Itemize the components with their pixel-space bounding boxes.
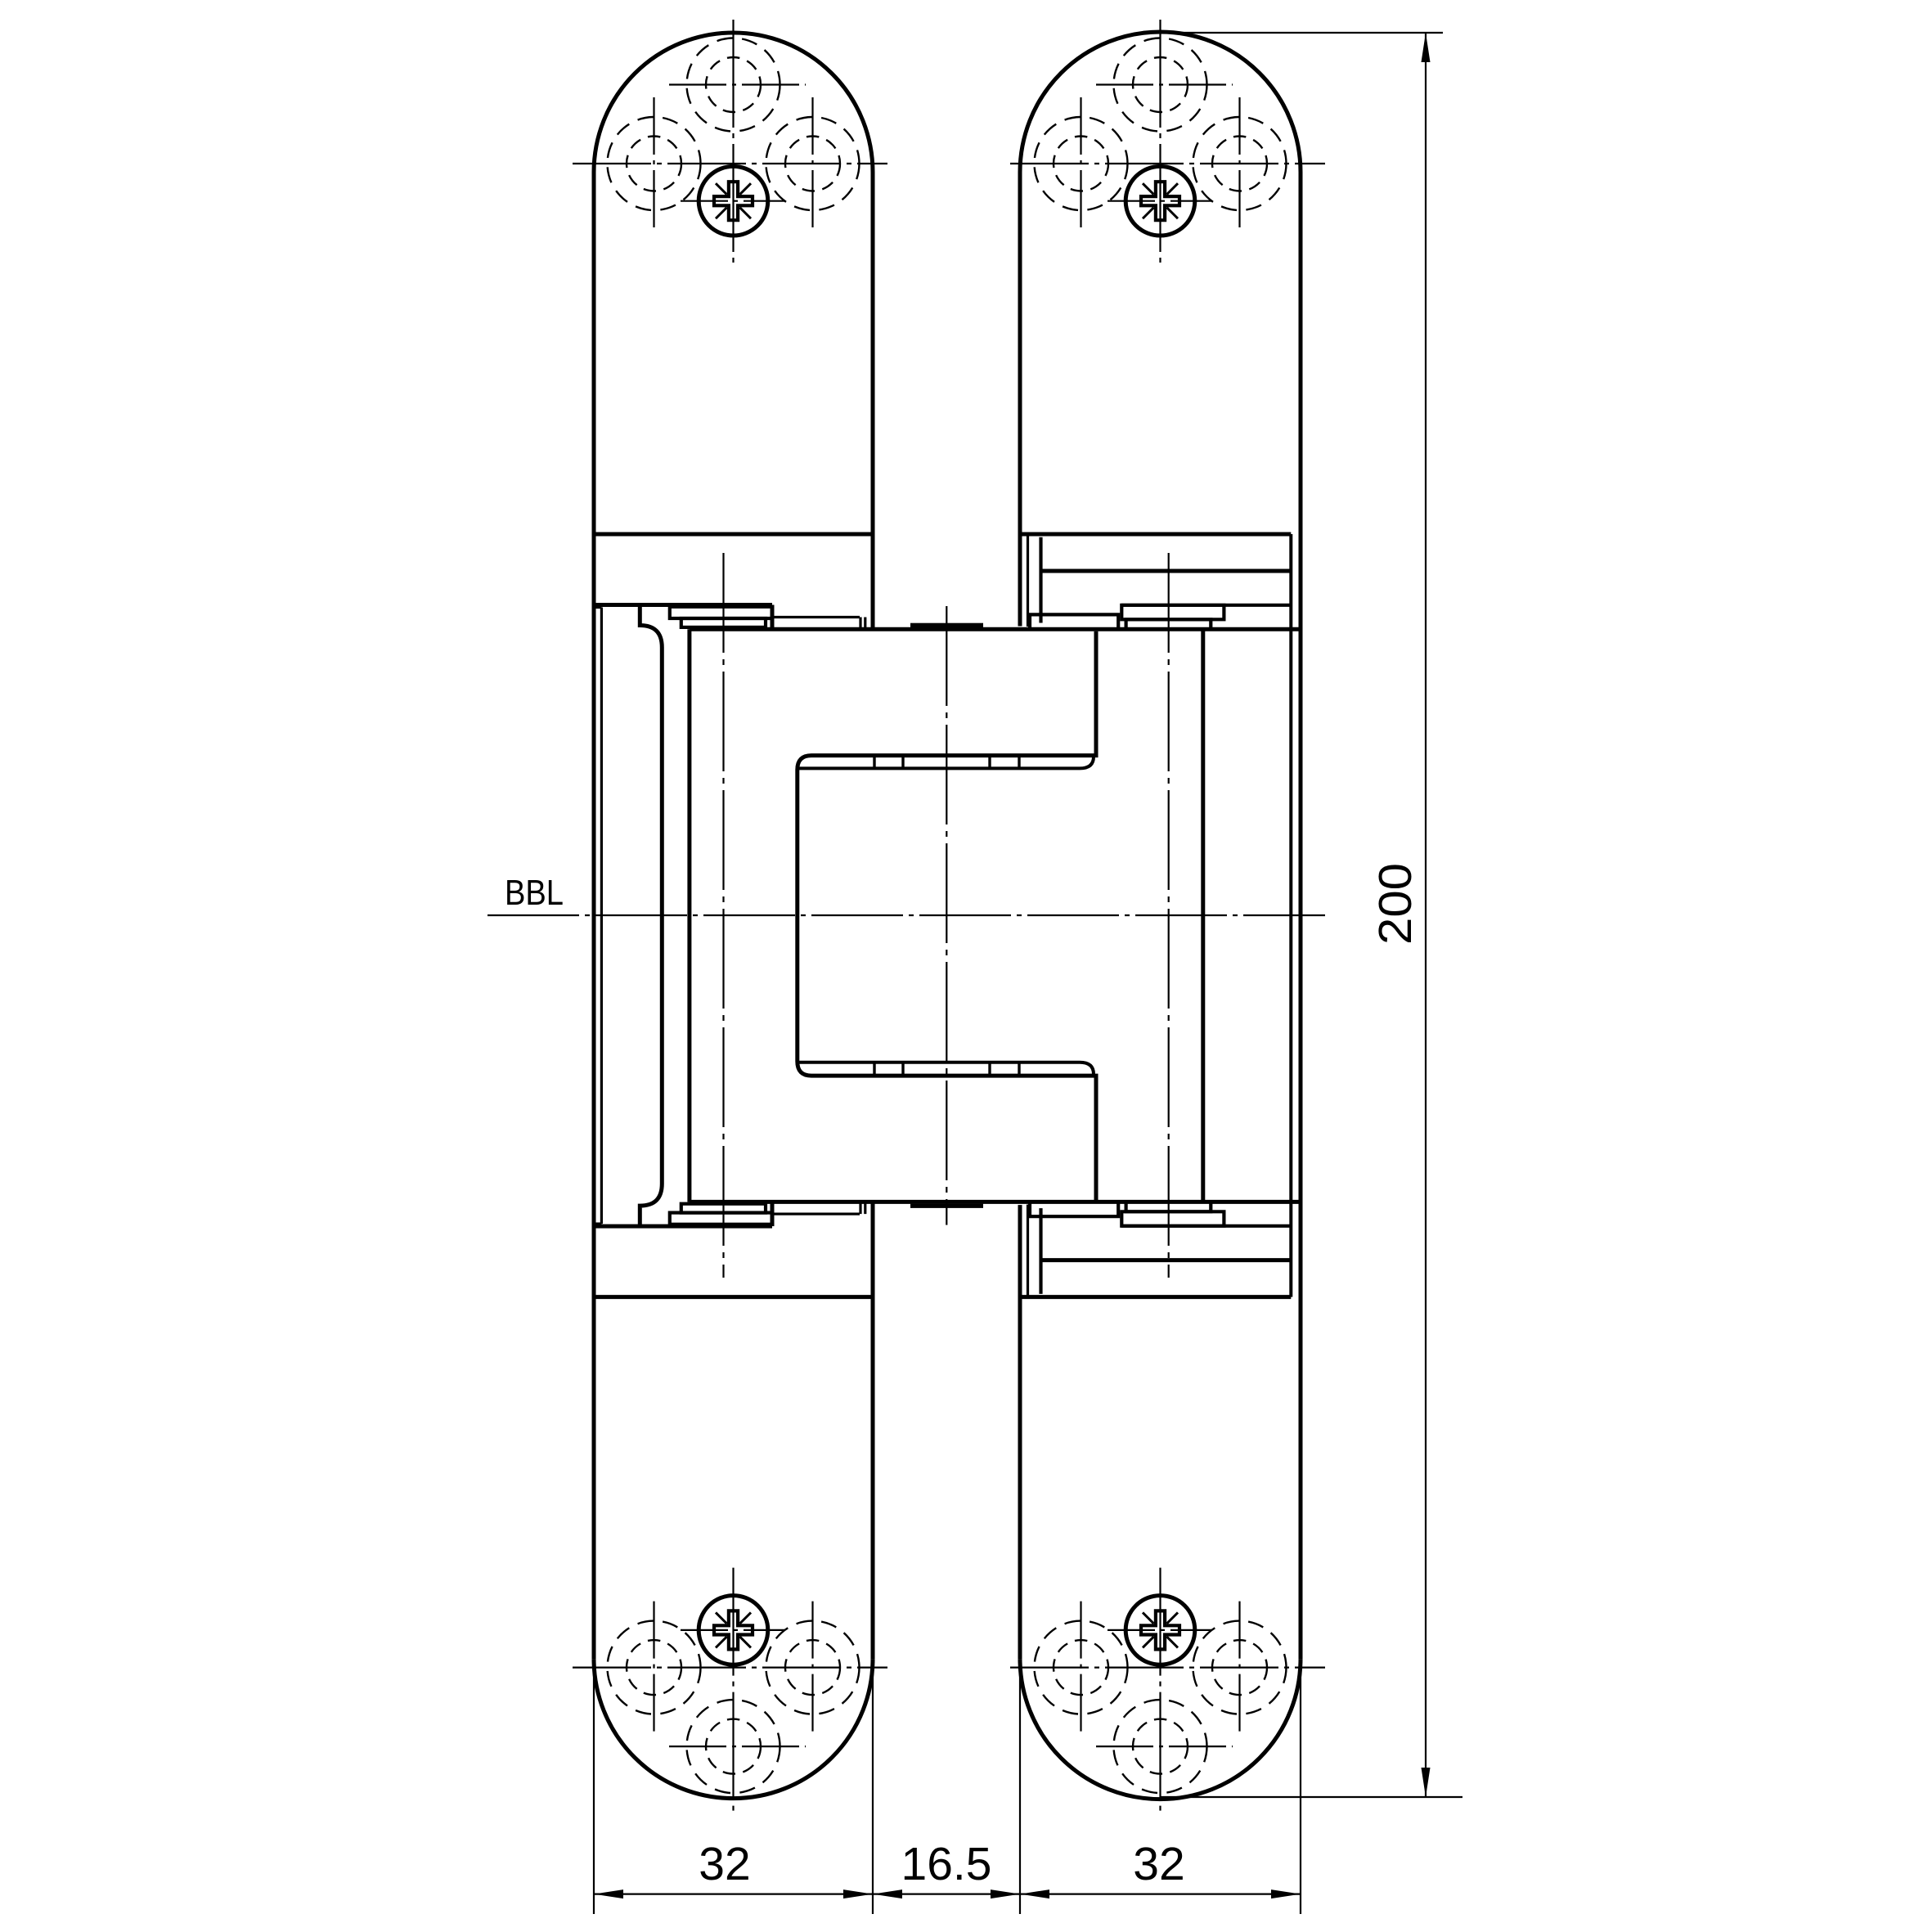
svg-text:32: 32	[1133, 1838, 1184, 1890]
svg-text:32: 32	[699, 1838, 750, 1890]
svg-text:16.5: 16.5	[901, 1838, 992, 1890]
svg-text:200: 200	[1369, 863, 1422, 945]
svg-text:BBL: BBL	[505, 873, 564, 913]
